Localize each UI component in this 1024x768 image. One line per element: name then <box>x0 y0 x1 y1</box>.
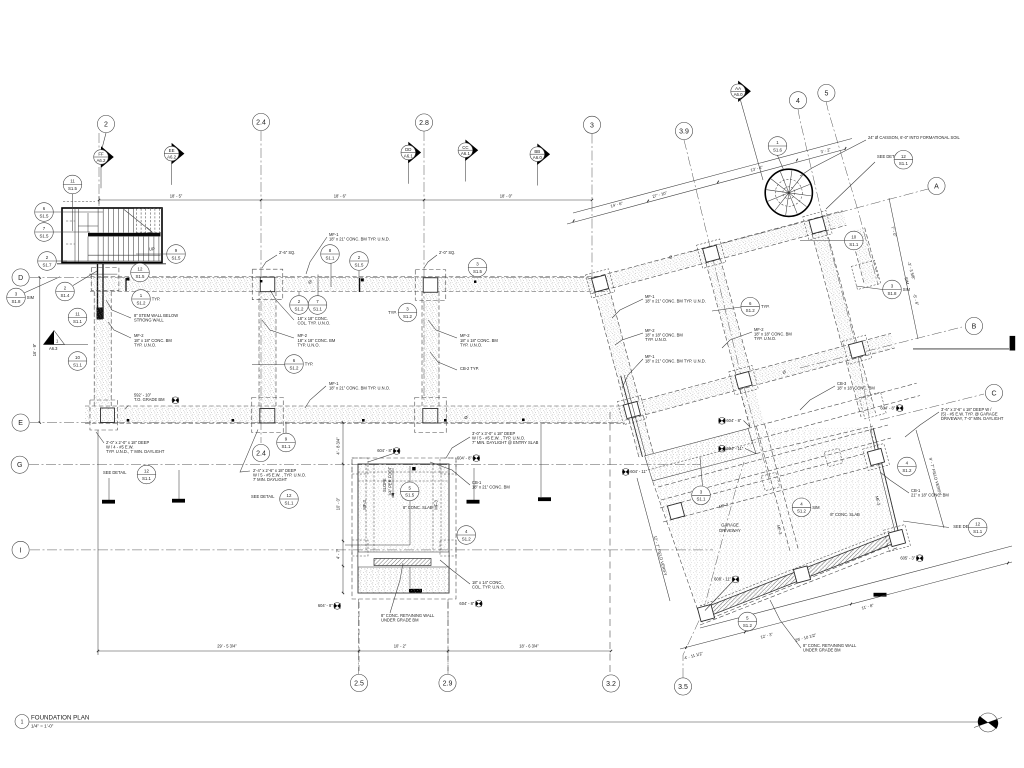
svg-text:10’ - 2”: 10’ - 2” <box>394 644 407 649</box>
svg-text:4’ - 7”: 4’ - 7” <box>336 548 341 559</box>
svg-text:3.2: 3.2 <box>606 681 616 688</box>
svg-text:A6.1: A6.1 <box>461 151 471 156</box>
svg-text:S1.2: S1.2 <box>294 306 304 311</box>
svg-text:18’ - 6”: 18’ - 6” <box>334 194 347 199</box>
svg-text:S1.4: S1.4 <box>60 293 70 298</box>
svg-text:608’ - 11”: 608’ - 11” <box>714 577 731 582</box>
svg-text:12: 12 <box>144 469 149 474</box>
svg-text:18” x 21” CONC. BM TYP. U.N.D.: 18” x 21” CONC. BM TYP. U.N.D. <box>329 237 390 242</box>
svg-text:S1.1: S1.1 <box>325 255 335 260</box>
svg-text:S1.1: S1.1 <box>313 306 323 311</box>
svg-text:SEE DETAIL: SEE DETAIL <box>103 470 127 475</box>
svg-text:BB: BB <box>534 149 540 154</box>
svg-text:UNDER GRADE BM: UNDER GRADE BM <box>803 648 841 653</box>
svg-text:18” x 21” CONC. BM TYP. U.N.D.: 18” x 21” CONC. BM TYP. U.N.D. <box>645 359 706 364</box>
svg-text:A6.0: A6.0 <box>533 155 543 160</box>
svg-text:A6.1: A6.1 <box>404 153 414 158</box>
svg-text:11: 11 <box>75 312 80 317</box>
svg-text:G: G <box>17 462 22 469</box>
svg-text:604’ - 8”: 604’ - 8” <box>726 418 742 423</box>
svg-text:S1.7: S1.7 <box>42 262 52 267</box>
svg-text:S1.5: S1.5 <box>354 262 364 267</box>
svg-text:S1.5: S1.5 <box>405 493 415 498</box>
svg-text:12: 12 <box>138 267 143 272</box>
svg-text:2.8: 2.8 <box>419 120 429 127</box>
svg-text:16’ - 9”: 16’ - 9” <box>32 343 37 356</box>
svg-text:A6.2: A6.2 <box>167 154 177 159</box>
svg-text:2.4: 2.4 <box>256 451 266 458</box>
svg-text:S1.2: S1.2 <box>462 536 472 541</box>
svg-text:B: B <box>972 324 977 331</box>
svg-text:4’ - 8 3/4”: 4’ - 8 3/4” <box>336 437 341 455</box>
svg-text:T.O. GRADE BM: T.O. GRADE BM <box>134 397 165 402</box>
svg-text:FOUNDATION PLAN: FOUNDATION PLAN <box>31 715 89 722</box>
svg-text:1/4” PER FOOT: 1/4” PER FOOT <box>388 466 393 496</box>
svg-text:SEE DETAIL: SEE DETAIL <box>251 494 275 499</box>
svg-text:D: D <box>18 275 23 282</box>
svg-text:12: 12 <box>287 493 292 498</box>
svg-text:TYP.: TYP. <box>152 297 161 302</box>
svg-text:S1.5: S1.5 <box>135 274 145 279</box>
svg-text:5: 5 <box>824 91 828 98</box>
svg-text:A: A <box>934 184 939 191</box>
svg-text:AA: AA <box>735 86 741 91</box>
svg-text:10’ - 0”: 10’ - 0” <box>336 497 341 510</box>
svg-text:S1.5: S1.5 <box>39 233 49 238</box>
svg-text:S1.2: S1.2 <box>289 365 299 370</box>
svg-text:18’ - 5”: 18’ - 5” <box>170 194 183 199</box>
svg-text:7’ MIN. DAYLIGHT: 7’ MIN. DAYLIGHT <box>253 477 288 482</box>
svg-text:S1.5: S1.5 <box>171 255 181 260</box>
svg-text:A6.3: A6.3 <box>49 346 58 351</box>
svg-text:S1.1: S1.1 <box>899 161 909 166</box>
svg-text:18’ - 0”: 18’ - 0” <box>500 194 513 199</box>
svg-text:S1.1: S1.1 <box>849 242 859 247</box>
svg-text:10: 10 <box>851 235 856 240</box>
svg-text:8” CONC. SLAB: 8” CONC. SLAB <box>403 505 433 510</box>
svg-text:E: E <box>18 420 23 427</box>
svg-text:SIM: SIM <box>903 287 911 292</box>
svg-text:3.5: 3.5 <box>678 684 688 691</box>
svg-text:12: 12 <box>975 522 980 527</box>
svg-text:GARAGE: GARAGE <box>721 523 739 528</box>
svg-text:604’ - 8”: 604’ - 8” <box>459 601 475 606</box>
svg-text:EE: EE <box>169 148 175 153</box>
svg-text:SLOPE: SLOPE <box>382 478 387 492</box>
svg-text:S1.2: S1.2 <box>746 308 756 313</box>
svg-text:604’ - 11”: 604’ - 11” <box>726 446 743 451</box>
svg-text:S1.1: S1.1 <box>973 529 983 534</box>
svg-text:MF-3: MF-3 <box>434 500 439 510</box>
svg-text:24” Ø CAISSON, 6’-0” INTO FORM: 24” Ø CAISSON, 6’-0” INTO FORMATIONAL SO… <box>868 135 961 140</box>
svg-text:TYP. U.N.D., 7’ MIN. DAYLIGHT: TYP. U.N.D., 7’ MIN. DAYLIGHT <box>106 449 165 454</box>
svg-text:604’ - 8”: 604’ - 8” <box>377 448 393 453</box>
svg-text:CC: CC <box>462 145 468 150</box>
svg-text:12: 12 <box>901 154 906 159</box>
svg-text:S1.1: S1.1 <box>142 476 152 481</box>
svg-text:S1.2: S1.2 <box>797 509 807 514</box>
svg-text:S1.1: S1.1 <box>284 500 294 505</box>
svg-text:S1.5: S1.5 <box>473 269 483 274</box>
svg-text:18” x 21” CONC. BM TYP. U.N.D.: 18” x 21” CONC. BM TYP. U.N.D. <box>645 299 706 304</box>
svg-text:2.4: 2.4 <box>256 120 266 127</box>
svg-text:1: 1 <box>21 720 24 726</box>
svg-text:S1.6: S1.6 <box>773 147 783 152</box>
svg-text:UP: UP <box>149 247 155 252</box>
svg-text:CB-2 TYP.: CB-2 TYP. <box>460 366 479 371</box>
svg-text:3.9: 3.9 <box>679 129 689 136</box>
svg-text:604’ - 8”: 604’ - 8” <box>457 455 473 460</box>
svg-text:S1.2: S1.2 <box>403 314 413 319</box>
svg-text:STRONG WALL: STRONG WALL <box>134 318 164 323</box>
svg-text:2.5: 2.5 <box>354 681 364 688</box>
svg-text:2’-0” SQ.: 2’-0” SQ. <box>439 250 455 255</box>
svg-text:604’ - 11”: 604’ - 11” <box>630 469 647 474</box>
svg-text:SIM: SIM <box>27 295 35 300</box>
svg-text:A6.0: A6.0 <box>734 92 744 97</box>
svg-text:18” x 18” CONC. BM: 18” x 18” CONC. BM <box>837 386 875 391</box>
svg-text:COL. TYP. U.N.O.: COL. TYP. U.N.O. <box>298 321 331 326</box>
svg-text:3: 3 <box>590 122 594 129</box>
svg-text:MF-3: MF-3 <box>362 500 367 510</box>
svg-text:21” x 18” CONC. BM: 21” x 18” CONC. BM <box>911 493 949 498</box>
svg-text:2’-6” SQ.: 2’-6” SQ. <box>279 250 295 255</box>
svg-text:A6.2: A6.2 <box>96 158 106 163</box>
svg-text:TYP. U.N.O.: TYP. U.N.O. <box>460 343 482 348</box>
svg-text:S1.1: S1.1 <box>281 444 291 449</box>
svg-text:S1.2: S1.2 <box>136 300 146 305</box>
svg-text:TYP. U.N.O.: TYP. U.N.O. <box>754 336 776 341</box>
svg-text:TYP. U.N.O.: TYP. U.N.O. <box>134 343 156 348</box>
svg-text:2: 2 <box>104 122 108 129</box>
svg-text:7” MIN. DAYLIGHT @ ENTRY SLAB: 7” MIN. DAYLIGHT @ ENTRY SLAB <box>472 440 539 445</box>
svg-text:10: 10 <box>75 355 80 360</box>
svg-text:11: 11 <box>70 179 75 184</box>
svg-text:I: I <box>20 547 22 554</box>
svg-text:C: C <box>991 391 996 398</box>
svg-text:S1.2: S1.2 <box>743 623 753 628</box>
svg-text:S1.2: S1.2 <box>902 468 912 473</box>
svg-text:DRIVEWAY: DRIVEWAY <box>719 528 741 533</box>
svg-text:605’ - 3”: 605’ - 3” <box>900 555 916 560</box>
svg-text:4: 4 <box>796 98 800 105</box>
svg-text:604’ - 8”: 604’ - 8” <box>880 405 896 410</box>
svg-text:S1.1: S1.1 <box>696 497 706 502</box>
svg-text:SIM: SIM <box>812 505 820 510</box>
svg-text:TYP. U.N.O.: TYP. U.N.O. <box>298 343 320 348</box>
svg-text:18” x 21” CONC. BM: 18” x 21” CONC. BM <box>472 485 510 490</box>
svg-text:TYP.: TYP. <box>761 304 770 309</box>
svg-text:2.9: 2.9 <box>443 681 453 688</box>
svg-text:DRIVEWAY, 7’-0” MIN. DAYLIGHT: DRIVEWAY, 7’-0” MIN. DAYLIGHT <box>941 416 1004 421</box>
svg-text:S1.1: S1.1 <box>73 362 83 367</box>
svg-text:COL. TYP. U.N.O.: COL. TYP. U.N.O. <box>472 585 505 590</box>
svg-text:S1.5: S1.5 <box>68 186 78 191</box>
svg-text:S1.8: S1.8 <box>11 299 21 304</box>
svg-text:S1.5: S1.5 <box>39 213 49 218</box>
svg-text:TYP.: TYP. <box>305 362 314 367</box>
svg-text:29’ - 5 3/4”: 29’ - 5 3/4” <box>217 644 237 649</box>
svg-text:1/4” = 1’-0”: 1/4” = 1’-0” <box>31 724 54 729</box>
svg-text:604’ - 8”: 604’ - 8” <box>318 603 334 608</box>
svg-text:DD: DD <box>405 147 411 152</box>
svg-text:TYP. U.N.O.: TYP. U.N.O. <box>645 337 667 342</box>
svg-text:18” x 21” CONC. BM TYP. U.N.O.: 18” x 21” CONC. BM TYP. U.N.O. <box>329 386 390 391</box>
svg-text:TYP.: TYP. <box>388 310 397 315</box>
svg-text:FF: FF <box>98 152 104 157</box>
svg-text:18’ - 6 3/4”: 18’ - 6 3/4” <box>519 644 539 649</box>
svg-text:S1.8: S1.8 <box>887 291 897 296</box>
svg-text:UNDER GRADE BM: UNDER GRADE BM <box>381 618 419 623</box>
svg-text:S1.1: S1.1 <box>73 319 83 324</box>
svg-text:8” CONC. SLAB: 8” CONC. SLAB <box>830 512 860 517</box>
